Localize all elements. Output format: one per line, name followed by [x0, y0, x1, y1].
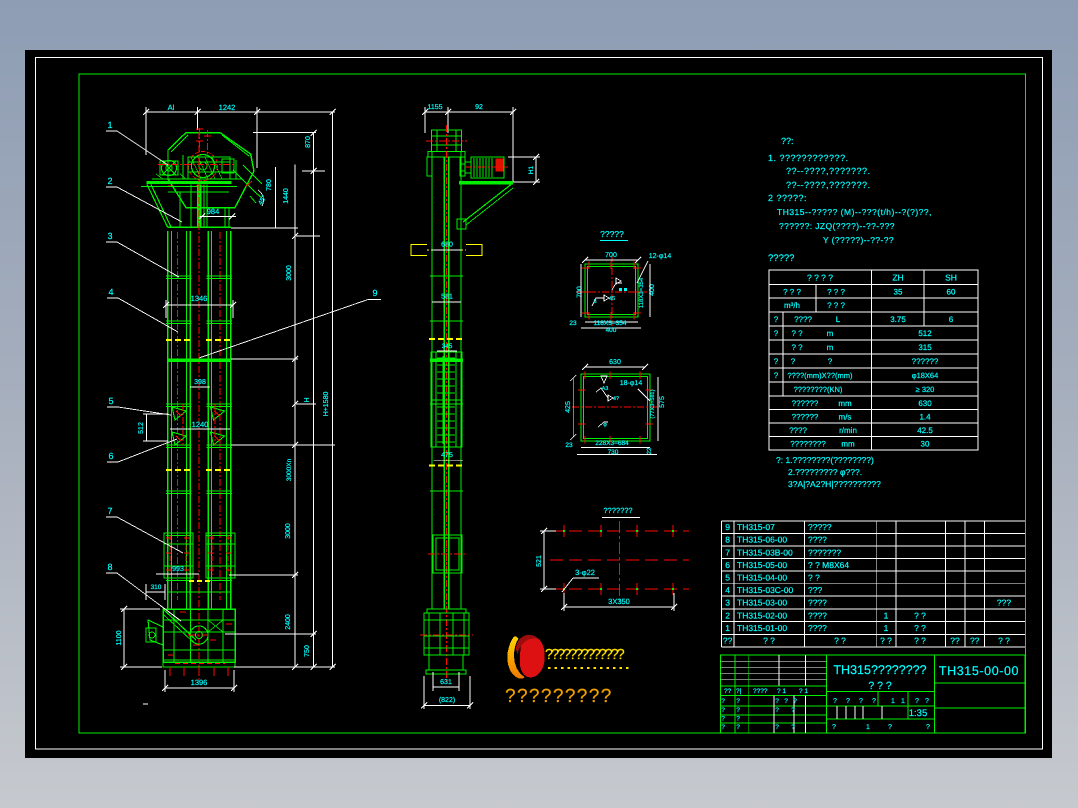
svg-text:631: 631 — [440, 679, 452, 686]
svg-text:? ?: ? ? — [791, 343, 803, 352]
svg-text:12-φ14: 12-φ14 — [649, 253, 672, 260]
svg-text:L: L — [836, 315, 841, 324]
svg-text:?: ? — [775, 724, 779, 731]
svg-text:7: 7 — [725, 547, 730, 557]
svg-text:425: 425 — [565, 401, 572, 413]
svg-text:?: ? — [915, 698, 919, 705]
svg-text:35: 35 — [894, 287, 903, 296]
svg-text:780: 780 — [266, 179, 273, 191]
svg-text:???: ??? — [808, 585, 822, 595]
svg-text:310: 310 — [151, 584, 162, 591]
svg-text:? ? M8X64: ? ? M8X64 — [808, 560, 849, 570]
svg-text:??????: ?????? — [792, 412, 819, 421]
svg-text:8: 8 — [725, 535, 730, 545]
svg-text:575: 575 — [659, 396, 666, 408]
svg-text:? ? ?: ? ? ? — [827, 287, 845, 296]
svg-text:228X3=684: 228X3=684 — [595, 440, 629, 447]
svg-text:? ?: ? ? — [998, 636, 1010, 646]
svg-text:512: 512 — [138, 422, 145, 434]
svg-text:?: ? — [774, 357, 779, 366]
svg-text:r/min: r/min — [839, 426, 857, 435]
svg-text:45: 45 — [609, 296, 615, 302]
svg-text:? ? ?: ? ? ? — [827, 301, 845, 310]
svg-text:?: ? — [833, 698, 837, 705]
svg-text:3-φ22: 3-φ22 — [575, 568, 595, 577]
svg-text:TH315--????? (M)--???(t/h)--?(: TH315--????? (M)--???(t/h)--?(?)??, — [777, 207, 932, 217]
svg-text:????: ???? — [808, 535, 827, 545]
svg-text:?: ? — [736, 724, 740, 731]
svg-text:?: ? — [774, 315, 779, 324]
svg-text:30: 30 — [921, 439, 930, 448]
svg-text:TH315-06-00: TH315-06-00 — [737, 535, 787, 545]
svg-text:?: ? — [721, 707, 725, 714]
svg-text:TH315-03-00: TH315-03-00 — [737, 598, 787, 608]
svg-text:42.5: 42.5 — [917, 426, 933, 435]
svg-text:? ?: ? ? — [791, 329, 803, 338]
svg-text:9: 9 — [372, 288, 377, 298]
svg-text:3000: 3000 — [286, 265, 293, 281]
svg-text:2 ?????:: 2 ?????: — [768, 193, 807, 203]
svg-text:?: ? — [888, 724, 892, 731]
svg-text:700: 700 — [577, 286, 584, 298]
svg-text:? ?: ? ? — [834, 636, 846, 646]
svg-text:2: 2 — [725, 610, 730, 620]
svg-text:??: ?? — [970, 636, 980, 646]
svg-text:345: 345 — [442, 343, 453, 350]
svg-text:1396: 1396 — [191, 678, 208, 687]
svg-text:?????: ????? — [808, 522, 832, 532]
svg-text:3: 3 — [593, 299, 596, 305]
svg-text:750: 750 — [304, 645, 311, 657]
svg-text:TH315-05-00: TH315-05-00 — [737, 560, 787, 570]
svg-text:????????: ???????? — [790, 439, 826, 448]
svg-text:1: 1 — [884, 623, 889, 633]
svg-text:? ? ?: ? ? ? — [783, 287, 801, 296]
svg-text:?: ? — [736, 707, 740, 714]
svg-text:6: 6 — [725, 560, 730, 570]
svg-text:TH315-03C-00: TH315-03C-00 — [737, 585, 793, 595]
svg-text:1: 1 — [107, 120, 112, 130]
svg-text:1. ????????????.: 1. ????????????. — [768, 153, 849, 163]
svg-text:398: 398 — [194, 379, 206, 386]
svg-text:1: 1 — [901, 698, 905, 705]
svg-text:????: ???? — [753, 688, 768, 695]
svg-text:SH: SH — [945, 272, 957, 282]
svg-text:Al: Al — [168, 103, 175, 112]
svg-text:700: 700 — [605, 252, 617, 259]
svg-text:? ? ?: ? ? ? — [868, 680, 892, 692]
svg-text:22: 22 — [646, 447, 653, 454]
svg-text:118X3=354: 118X3=354 — [638, 277, 645, 308]
svg-text:??????: JZQ(????)--??-???: ??????: JZQ(????)--??-??? — [779, 221, 895, 231]
svg-text:H1: H1 — [528, 165, 535, 174]
svg-text:?: ? — [784, 698, 788, 705]
svg-text:7: 7 — [107, 506, 112, 516]
svg-text:?: ? — [721, 698, 725, 705]
svg-text:315: 315 — [918, 343, 932, 352]
svg-text:TH315????????: TH315???????? — [833, 663, 926, 677]
svg-text:680: 680 — [441, 242, 453, 249]
svg-text:TH315-07: TH315-07 — [737, 522, 775, 532]
svg-text:??: ?? — [723, 636, 733, 646]
svg-text:581: 581 — [441, 294, 453, 301]
svg-text:? ?: ? ? — [808, 572, 820, 582]
svg-text:????: ???? — [808, 598, 827, 608]
svg-text:?: ? — [926, 724, 930, 731]
svg-text:????: ???? — [808, 623, 827, 633]
svg-text:1100: 1100 — [116, 630, 123, 645]
svg-text:?: ? — [846, 698, 850, 705]
svg-text:?: ? — [736, 716, 740, 723]
svg-text:1: 1 — [866, 724, 870, 731]
svg-text:3: 3 — [107, 231, 112, 241]
svg-text:1240: 1240 — [192, 420, 209, 429]
svg-text:TH315-00-00: TH315-00-00 — [939, 664, 1019, 678]
svg-text:φ18X64: φ18X64 — [912, 371, 939, 380]
svg-text:984: 984 — [207, 207, 220, 216]
svg-text:TH315-01-00: TH315-01-00 — [737, 623, 787, 633]
svg-text:2: 2 — [107, 176, 112, 186]
svg-text:mm: mm — [838, 399, 852, 408]
svg-text:??:: ??: — [781, 136, 794, 146]
svg-text:????????(KN): ????????(KN) — [794, 385, 843, 394]
svg-text:5: 5 — [108, 396, 113, 406]
svg-text:993: 993 — [172, 566, 184, 573]
svg-text:??--????,???????.: ??--????,???????. — [786, 180, 871, 190]
svg-text:?: ? — [775, 707, 779, 714]
svg-text:92: 92 — [475, 104, 483, 111]
svg-text:A3: A3 — [602, 386, 609, 392]
svg-text:3?A|?A2?H|??????????: 3?A|?A2?H|?????????? — [788, 479, 881, 489]
svg-text:?: ? — [736, 698, 740, 705]
svg-text:? ? ? ?: ? ? ? ? — [807, 272, 833, 282]
svg-text:?: ? — [721, 716, 725, 723]
svg-text:4: 4 — [725, 585, 730, 595]
svg-text:? ?: ? ? — [914, 610, 926, 620]
svg-text:1.4: 1.4 — [919, 412, 931, 421]
svg-text:2400: 2400 — [285, 614, 292, 630]
svg-text:m: m — [827, 329, 834, 338]
svg-text:1440: 1440 — [283, 188, 290, 204]
svg-text:?: ? — [859, 698, 863, 705]
svg-text:2.????????? φ???.: 2.????????? φ???. — [788, 467, 862, 477]
svg-text:4: 4 — [108, 287, 113, 297]
svg-text:??????: ?????? — [792, 399, 819, 408]
svg-text:?: ? — [774, 371, 779, 380]
svg-text:3000: 3000 — [285, 523, 292, 539]
svg-text:5: 5 — [725, 572, 730, 582]
svg-text:1242: 1242 — [219, 103, 236, 112]
svg-text:1155: 1155 — [427, 104, 442, 111]
svg-text:630: 630 — [609, 359, 621, 366]
svg-text:?????: ????? — [600, 229, 624, 239]
svg-text:(77X3=581): (77X3=581) — [650, 389, 656, 418]
svg-text:?: ? — [775, 698, 779, 705]
svg-text:m: m — [827, 343, 834, 352]
svg-text:?: ? — [793, 698, 797, 705]
svg-text:????: ???? — [808, 610, 827, 620]
svg-text:118X3=354: 118X3=354 — [594, 320, 627, 327]
svg-text:??: ?? — [724, 688, 732, 695]
svg-text:Y (?????)--??-??: Y (?????)--??-?? — [823, 235, 894, 245]
svg-text:?: ? — [721, 724, 725, 731]
svg-text:?: ? — [832, 724, 836, 731]
svg-text:????: ???? — [789, 426, 807, 435]
svg-text:4?: 4? — [613, 396, 619, 402]
svg-text:(822): (822) — [439, 696, 455, 704]
svg-text:??: ?? — [950, 636, 960, 646]
svg-text:6: 6 — [108, 451, 113, 461]
svg-text:?????????: ????????? — [505, 686, 613, 707]
svg-text:475: 475 — [441, 452, 453, 459]
svg-text:?: ? — [872, 698, 876, 705]
svg-text:? ?: ? ? — [880, 636, 892, 646]
svg-text:6: 6 — [949, 315, 954, 324]
svg-text:mm: mm — [841, 439, 855, 448]
svg-text:?|: ?| — [736, 688, 742, 695]
svg-text:60: 60 — [947, 287, 956, 296]
svg-text:1:35: 1:35 — [909, 708, 928, 719]
svg-text:?: ? — [791, 724, 795, 731]
svg-text:1: 1 — [884, 610, 889, 620]
svg-text:1: 1 — [891, 698, 895, 705]
svg-text:1: 1 — [725, 623, 730, 633]
svg-text:9: 9 — [725, 522, 730, 532]
svg-text:? ?: ? ? — [914, 623, 926, 633]
svg-text:?: ? — [925, 698, 929, 705]
svg-text:H+1580: H+1580 — [323, 392, 330, 417]
svg-text:400: 400 — [606, 327, 617, 334]
svg-text:512: 512 — [918, 329, 932, 338]
svg-text:???: ??? — [997, 598, 1011, 608]
svg-text:m³/h: m³/h — [784, 301, 800, 310]
svg-text:? 1: ? 1 — [799, 688, 808, 695]
svg-text:????: ???? — [794, 315, 812, 324]
svg-text:1346: 1346 — [191, 294, 208, 303]
svg-text:8: 8 — [107, 562, 112, 572]
svg-text:730: 730 — [608, 449, 619, 456]
svg-text:23: 23 — [565, 442, 573, 449]
svg-text:3000Xn: 3000Xn — [286, 458, 293, 481]
svg-text:φ: φ — [603, 422, 607, 428]
svg-text:3X350: 3X350 — [608, 597, 630, 606]
svg-text:TH315-02-00: TH315-02-00 — [737, 610, 787, 620]
svg-text:3: 3 — [725, 598, 730, 608]
svg-text:?????????????: ????????????? — [545, 647, 625, 663]
svg-text:H: H — [304, 397, 311, 402]
svg-text:?: ? — [828, 357, 833, 366]
svg-text:?: ? — [791, 357, 796, 366]
svg-text:TH315-03B-00: TH315-03B-00 — [737, 547, 793, 557]
svg-text:m/s: m/s — [839, 412, 852, 421]
svg-text:23: 23 — [569, 320, 577, 327]
svg-text:????(mm)X??(mm): ????(mm)X??(mm) — [787, 371, 853, 380]
svg-text:?: ? — [774, 329, 779, 338]
svg-text:??????: ?????? — [912, 357, 939, 366]
svg-text:? ?: ? ? — [914, 636, 926, 646]
svg-text:TH315-04-00: TH315-04-00 — [737, 572, 787, 582]
svg-text:870: 870 — [305, 136, 312, 148]
svg-text:?: 1.????????(????????): ?: 1.????????(????????) — [776, 455, 874, 465]
svg-text:18-φ14: 18-φ14 — [620, 380, 643, 387]
svg-text:?: ? — [791, 707, 795, 714]
svg-text:???????: ??????? — [603, 506, 632, 515]
svg-text:ZH: ZH — [892, 272, 903, 282]
svg-text:3.75: 3.75 — [890, 315, 906, 324]
svg-text:? 1: ? 1 — [777, 688, 786, 695]
svg-text:???????: ??????? — [808, 547, 841, 557]
svg-text:? ?: ? ? — [763, 636, 775, 646]
svg-text:≥ 320: ≥ 320 — [916, 385, 935, 394]
svg-text:??--????,???????.: ??--????,???????. — [786, 166, 871, 176]
svg-text:630: 630 — [918, 399, 932, 408]
svg-text:?????: ????? — [768, 253, 794, 264]
svg-text:521: 521 — [536, 555, 543, 567]
